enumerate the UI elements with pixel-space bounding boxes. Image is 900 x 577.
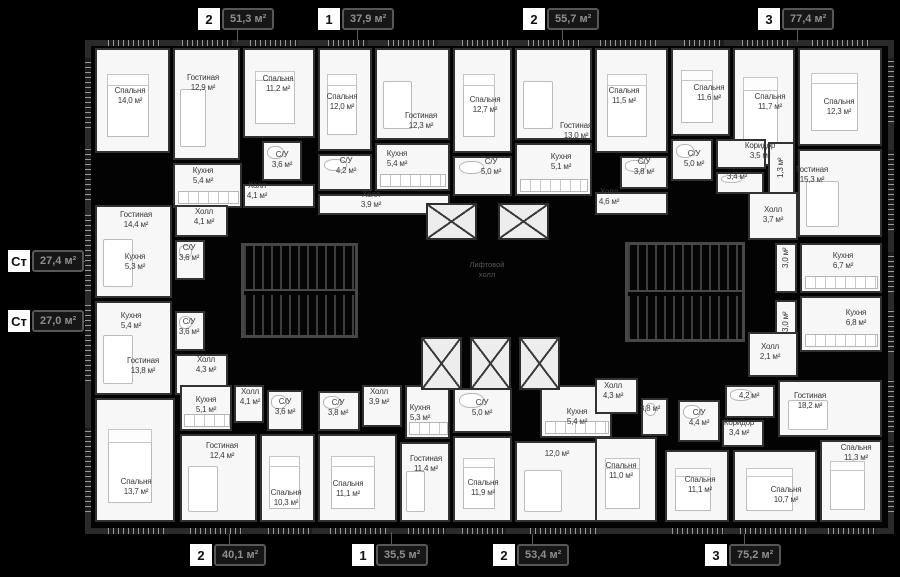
room [733,450,817,522]
apartment-badge[interactable]: Ст27,0 м² [8,310,84,332]
window-strip [530,528,596,534]
badge-room-count: 3 [705,544,727,566]
room [173,163,242,208]
elevator-shaft [470,337,511,390]
room [722,420,764,447]
window-strip [250,40,298,46]
room [678,400,720,442]
room [453,156,512,196]
room [362,385,402,427]
room [716,139,766,169]
window-strip [888,380,894,432]
badge-area: 77,4 м² [782,8,834,30]
badge-area: 55,7 м² [547,8,599,30]
window-strip [388,40,438,46]
room [95,205,172,298]
window-strip [888,310,894,352]
room [95,301,172,395]
floor-plan: Лифтовой холл Спальня14,0 м²Гостиная12,9… [0,0,900,577]
room [775,243,797,293]
badge-room-count: 2 [523,8,545,30]
room [620,156,668,189]
room [820,440,882,522]
badge-room-count: 1 [352,544,374,566]
room [768,142,795,194]
window-strip [182,40,232,46]
apartment-badge[interactable]: 240,1 м² [190,544,266,566]
window-strip [672,528,724,534]
room [515,48,592,140]
badge-room-count: 1 [318,8,340,30]
badge-room-count: Ст [8,250,30,272]
badge-room-count: Ст [8,310,30,332]
room [260,434,315,522]
apartment-badge[interactable]: 135,5 м² [352,544,428,566]
room [595,48,668,153]
window-strip [828,528,876,534]
room [318,434,397,522]
window-strip [888,442,894,512]
window-strip [742,40,788,46]
lift-hall-label: Лифтовой холл [442,260,532,280]
room [748,332,798,377]
badge-area: 53,4 м² [517,544,569,566]
badge-room-count: 2 [198,8,220,30]
apartment-badge[interactable]: 375,2 м² [705,544,781,566]
room [798,48,882,146]
room [180,385,232,431]
window-strip [108,528,164,534]
room [318,154,372,191]
room [405,385,450,439]
badge-connector [391,532,392,544]
room [375,143,450,191]
room [318,48,372,151]
badge-room-count: 2 [190,544,212,566]
room [95,48,170,153]
room [778,380,882,437]
window-strip [462,528,506,534]
elevator-shaft [498,203,549,240]
elevator-shaft [519,337,560,390]
room [175,311,205,351]
stairwell [241,243,358,338]
elevator-shaft [421,337,462,390]
window-strip [108,40,160,46]
room [453,436,512,522]
room [595,192,668,215]
window-strip [408,528,446,534]
room [800,296,882,352]
room [671,139,713,181]
room [725,385,775,418]
window-strip [888,150,894,230]
room [800,243,882,293]
room [175,240,205,280]
window-strip [190,528,242,534]
room [716,172,764,194]
window-strip [85,428,91,512]
room [748,192,798,240]
window-strip [85,215,91,291]
badge-area: 51,3 м² [222,8,274,30]
room [671,48,730,136]
room [180,434,257,522]
apartment-badge[interactable]: 251,3 м² [198,8,274,30]
badge-area: 75,2 м² [729,544,781,566]
badge-area: 27,4 м² [32,250,84,272]
room [175,205,228,237]
window-strip [888,58,894,122]
badge-area: 27,0 м² [32,310,84,332]
window-strip [268,528,312,534]
room [243,184,315,208]
badge-room-count: 3 [758,8,780,30]
window-strip [85,148,91,200]
window-strip [330,528,386,534]
room [234,385,264,423]
room [262,141,302,181]
badge-connector [237,30,238,42]
window-strip [85,305,91,381]
room [798,149,882,237]
window-strip [888,252,894,292]
window-strip [812,40,870,46]
badge-room-count: 2 [493,544,515,566]
apartment-badge[interactable]: 137,9 м² [318,8,394,30]
window-strip [462,40,508,46]
room [641,398,668,436]
room [453,48,512,153]
room [375,48,450,140]
apartment-badge[interactable]: Ст27,4 м² [8,250,84,272]
room [267,390,303,431]
apartment-badge[interactable]: 253,4 м² [493,544,569,566]
stairwell [625,242,745,342]
elevator-shaft [426,203,477,240]
room [318,391,360,431]
lift-hall-label-line2: холл [442,270,532,280]
apartment-badge[interactable]: 255,7 м² [523,8,599,30]
window-strip [528,40,580,46]
window-strip [684,40,724,46]
badge-connector [797,30,798,42]
window-strip [85,58,91,128]
room [400,442,450,522]
room [95,398,175,522]
room [665,450,729,522]
room [453,388,512,433]
apartment-badge[interactable]: 377,4 м² [758,8,834,30]
room [595,437,657,522]
window-strip [740,528,806,534]
badge-area: 40,1 м² [214,544,266,566]
window-strip [600,40,656,46]
badge-area: 35,5 м² [376,544,428,566]
room [515,143,592,196]
room [595,378,638,414]
room [173,48,240,160]
lift-hall-label-line1: Лифтовой [442,260,532,270]
window-strip [328,40,368,46]
badge-area: 37,9 м² [342,8,394,30]
room [243,48,315,138]
